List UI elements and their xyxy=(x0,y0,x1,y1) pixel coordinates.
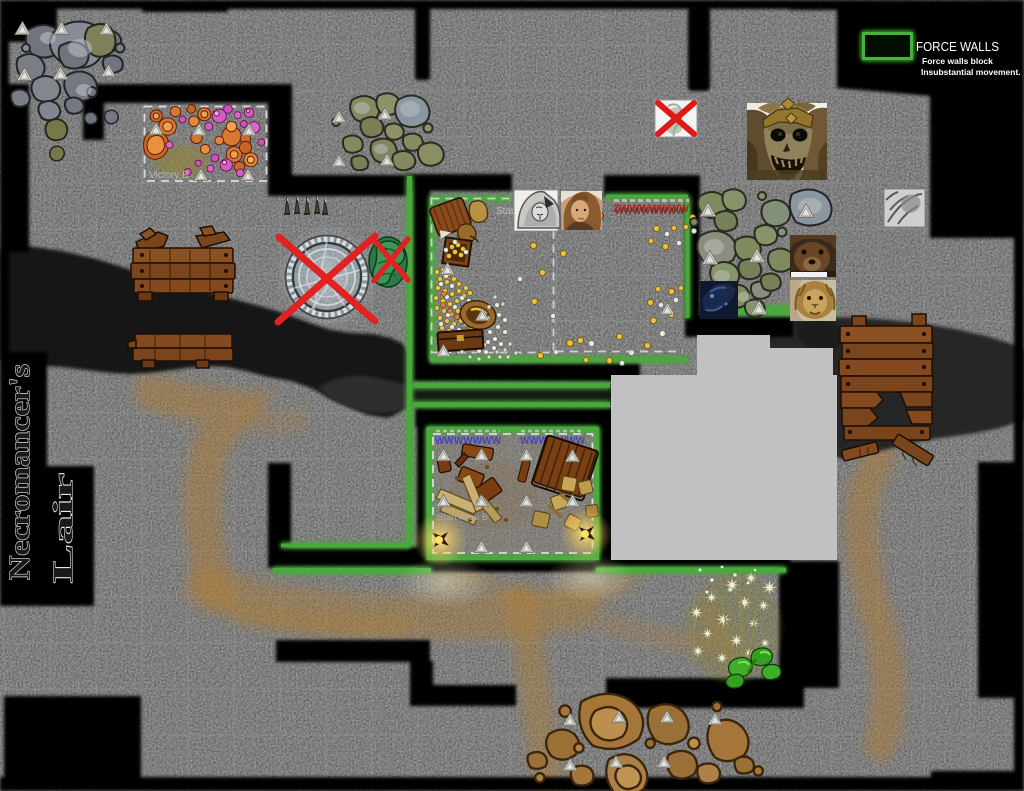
svg-text:FORCE WALLS: FORCE WALLS xyxy=(916,40,999,54)
svg-text:Victory B: Victory B xyxy=(149,170,189,181)
svg-text:Lair: Lair xyxy=(48,473,78,583)
svg-text:Necromancer's: Necromancer's xyxy=(5,364,36,580)
svg-text:Insubstantial movement.: Insubstantial movement. xyxy=(921,67,1021,77)
svg-text:Force walls block: Force walls block xyxy=(922,56,993,66)
svg-text:WWWWWWWW: WWWWWWWW xyxy=(615,206,686,216)
